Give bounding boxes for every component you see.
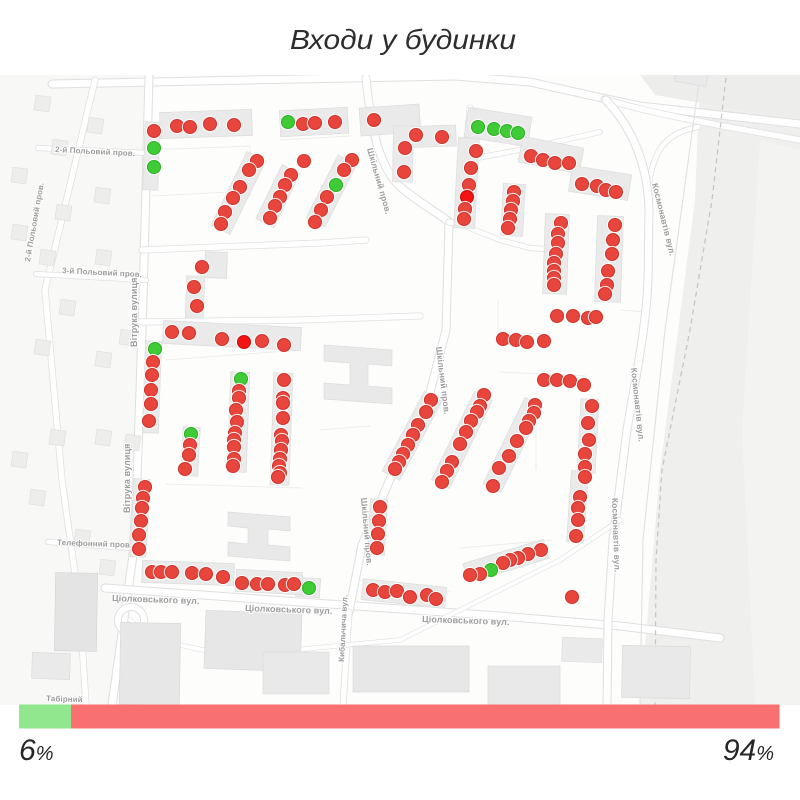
svg-text:Вітрука вулиця: Вітрука вулиця [129,278,139,347]
svg-text:Входи у будинки: Входи у будинки [290,24,516,55]
svg-text:Табірний: Табірний [46,694,83,704]
svg-text:Вітрука вулиця: Вітрука вулиця [122,444,132,513]
